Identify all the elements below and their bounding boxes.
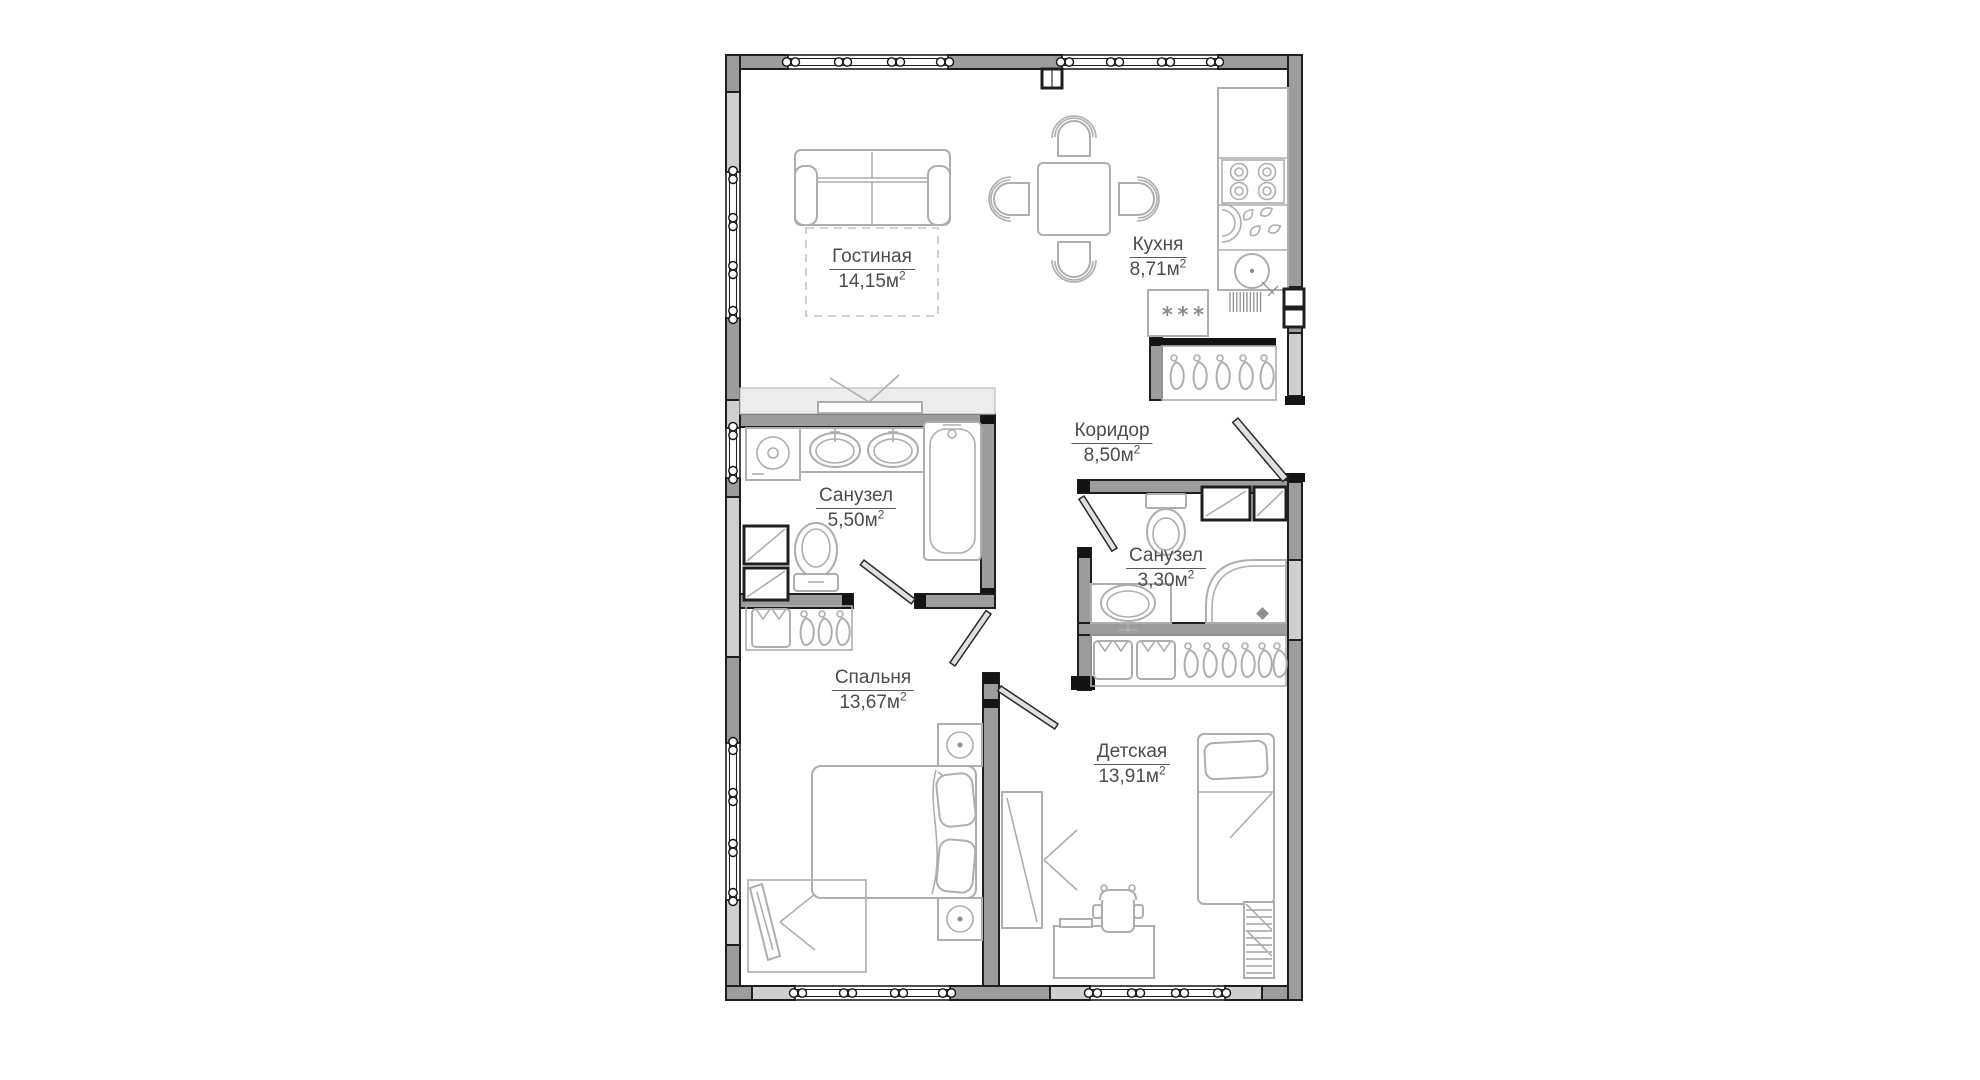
double-sink-counter xyxy=(800,428,932,472)
room-label-kitchen: Кухня 8,71м2 xyxy=(1130,234,1187,281)
window-kids-bottom xyxy=(1085,986,1231,1000)
appliance-boxes xyxy=(1202,487,1286,520)
window-bedroom-left xyxy=(726,738,740,906)
fridge: *** xyxy=(1148,290,1208,336)
room-name-corridor: Коридор xyxy=(1071,420,1152,444)
room-label-corridor: Коридор 8,50м2 xyxy=(1071,420,1152,467)
room-label-bath-big: Санузел 5,50м2 xyxy=(816,485,896,532)
room-area-bath-big: 5,50м2 xyxy=(816,510,896,532)
room-area-kitchen: 8,71м2 xyxy=(1130,259,1187,281)
floor-plan-page: *** xyxy=(0,0,1980,1080)
shower xyxy=(1206,560,1286,623)
desk-chair xyxy=(1093,885,1143,932)
window-living-left xyxy=(726,167,740,324)
cabinets-bath-big xyxy=(744,526,788,600)
bath-small-door-leaf xyxy=(1079,496,1117,551)
room-area-bath-small: 3,30м2 xyxy=(1126,570,1206,592)
kids-wardrobe xyxy=(1002,792,1077,928)
window-living-top xyxy=(783,55,954,69)
window-bedroom-bottom xyxy=(790,986,956,1000)
floor-plan-drawing: *** xyxy=(0,0,1980,1080)
kids-door-leaf xyxy=(998,686,1058,729)
freezer-stars: *** xyxy=(1161,303,1208,327)
entrance-door-leaf xyxy=(1233,418,1288,482)
room-name-living: Гостиная xyxy=(829,246,915,270)
nightstand-top xyxy=(938,724,982,766)
hall-closet xyxy=(1162,346,1276,400)
room-name-bath-big: Санузел xyxy=(816,485,896,509)
double-bed xyxy=(812,766,977,898)
room-label-bedroom: Спальня 13,67м2 xyxy=(832,667,914,714)
washing-machine xyxy=(746,428,800,480)
window-kitchen-top xyxy=(1057,55,1224,69)
vent-boxes-right-wall xyxy=(1284,289,1304,327)
single-bed xyxy=(1198,734,1274,904)
room-label-kids: Детская 13,91м2 xyxy=(1094,741,1170,788)
vent-box-kitchen xyxy=(1042,69,1062,88)
sofa xyxy=(795,150,950,225)
bedroom-closet xyxy=(746,606,852,650)
nightstand-bottom xyxy=(938,898,982,940)
bathtub xyxy=(924,422,981,560)
room-name-kids: Детская xyxy=(1094,741,1170,765)
room-label-living: Гостиная 14,15м2 xyxy=(829,246,915,293)
toilet-bath-big xyxy=(794,523,838,591)
room-area-living: 14,15м2 xyxy=(829,271,915,293)
window-bath-left xyxy=(726,423,740,484)
room-name-bath-small: Санузел xyxy=(1126,545,1206,569)
bath-big-door-leaf xyxy=(860,560,915,604)
room-living xyxy=(740,116,1159,414)
bedroom-door-leaf xyxy=(950,611,991,666)
room-area-corridor: 8,50м2 xyxy=(1071,445,1152,467)
room-name-bedroom: Спальня xyxy=(832,667,914,691)
room-name-kitchen: Кухня xyxy=(1130,234,1187,258)
console-table xyxy=(740,375,995,414)
room-bedroom xyxy=(746,606,982,972)
room-label-bath-small: Санузел 3,30м2 xyxy=(1126,545,1206,592)
kids-dresser-radiator xyxy=(1244,902,1274,978)
room-area-kids: 13,91м2 xyxy=(1094,766,1170,788)
radiator-kitchen xyxy=(1230,292,1261,312)
room-area-bedroom: 13,67м2 xyxy=(832,692,914,714)
kids-closet xyxy=(1091,635,1287,686)
